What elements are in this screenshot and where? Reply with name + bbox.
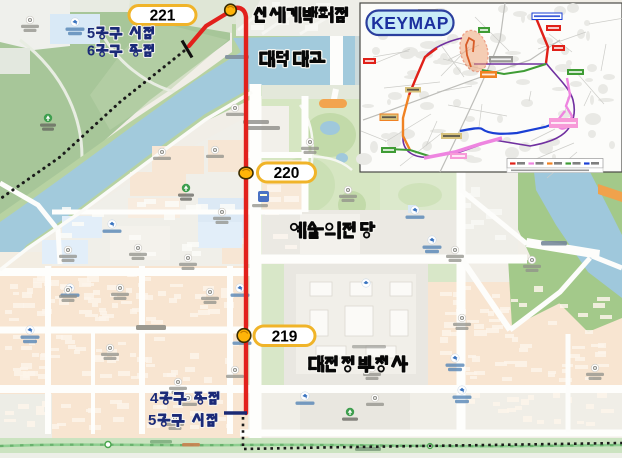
- svg-text:4: 4: [150, 390, 159, 407]
- svg-text:221: 221: [150, 7, 176, 24]
- svg-text:5: 5: [87, 26, 95, 42]
- svg-text:6: 6: [87, 44, 95, 60]
- svg-text:KEYMAP: KEYMAP: [371, 13, 449, 33]
- svg-text:219: 219: [272, 328, 298, 345]
- svg-text:220: 220: [274, 165, 300, 182]
- svg-text:5: 5: [148, 412, 156, 429]
